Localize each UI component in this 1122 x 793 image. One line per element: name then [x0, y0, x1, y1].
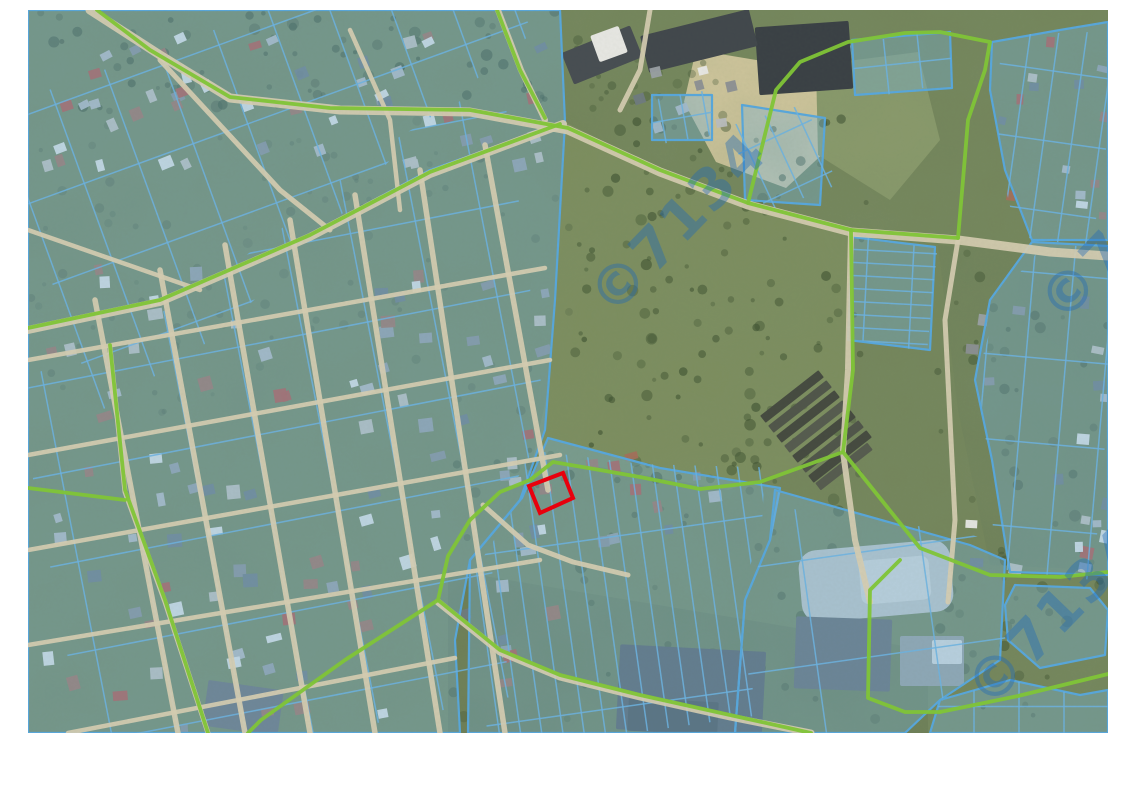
cadastral-map-canvas[interactable]: ©7134©7134©7134: [28, 10, 1108, 733]
imagery-grain: [28, 10, 1108, 733]
screenshot-root: ©7134©7134©7134: [0, 0, 1122, 793]
map-viewport: ©7134©7134©7134: [28, 10, 1108, 733]
